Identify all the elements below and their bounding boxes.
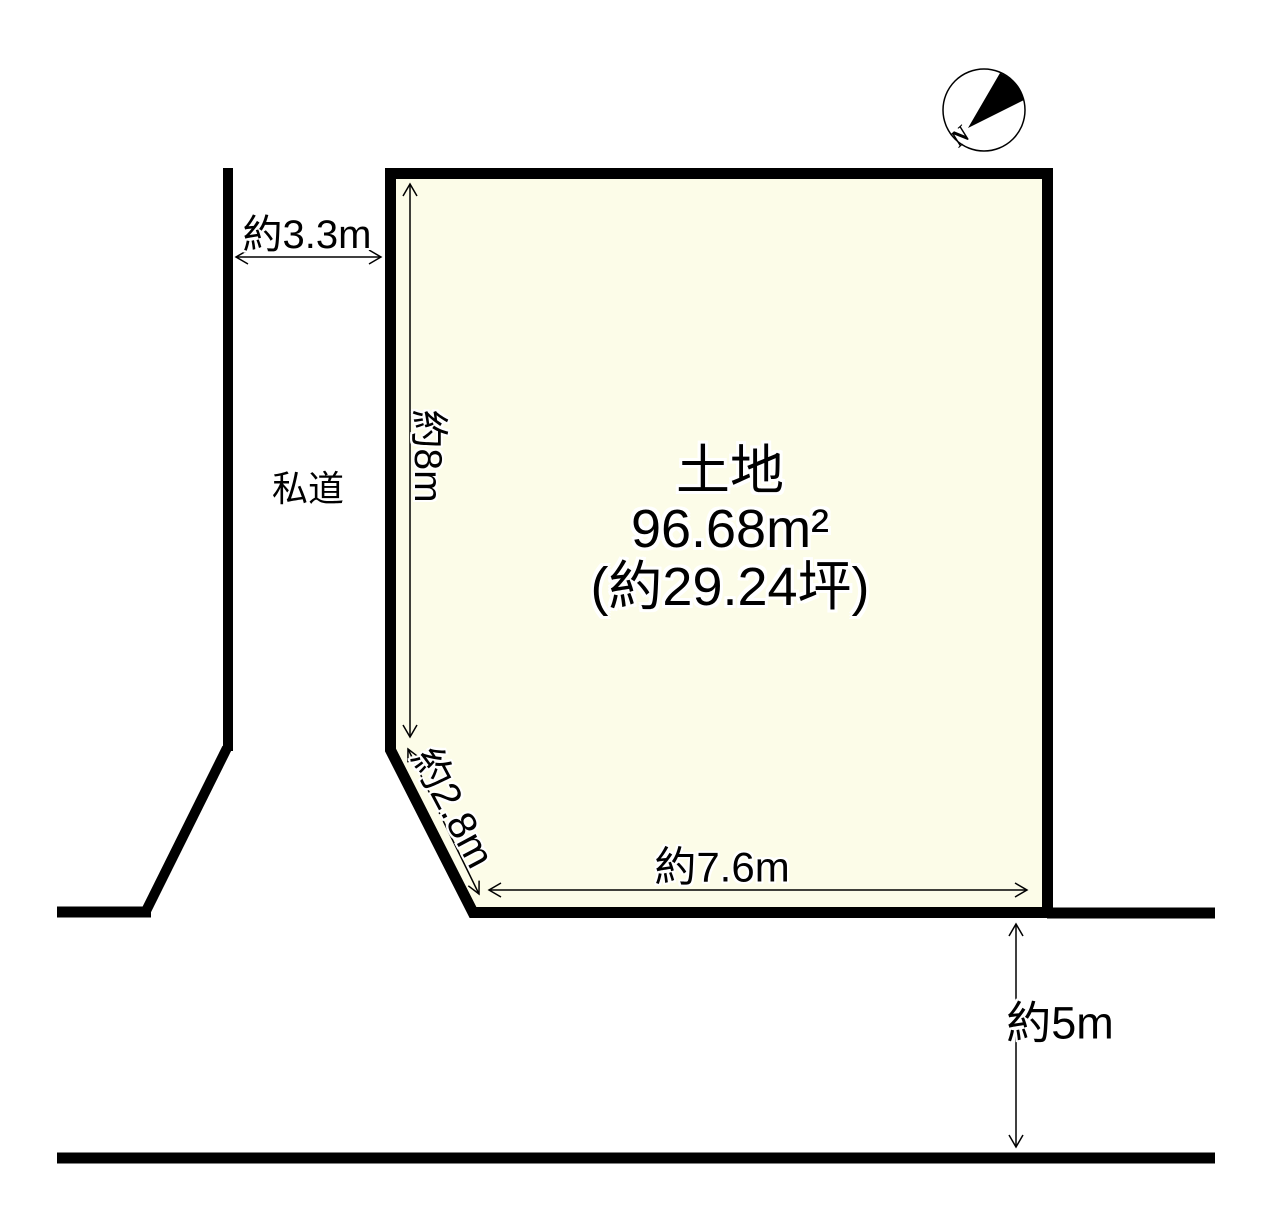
dim-label-west-side: 約8m — [403, 409, 459, 502]
dim-label-south-road-width: 約5m — [1006, 987, 1114, 1052]
compass-rose: N — [943, 69, 1025, 153]
site-plan: N — [0, 0, 1273, 1219]
plot-area-m2: 96.68m² — [590, 500, 869, 558]
plot-name: 土地 — [590, 442, 869, 500]
dim-label-south-side: 約7.6m — [654, 834, 789, 895]
private-road-flare-edge — [146, 748, 227, 911]
plot-area-tsubo: (約29.24坪) — [590, 558, 869, 616]
private-road-label: 私道 — [272, 460, 344, 512]
dim-label-road-width: 約3.3m — [243, 202, 372, 260]
plot-title: 土地 96.68m² (約29.24坪) — [590, 442, 869, 616]
